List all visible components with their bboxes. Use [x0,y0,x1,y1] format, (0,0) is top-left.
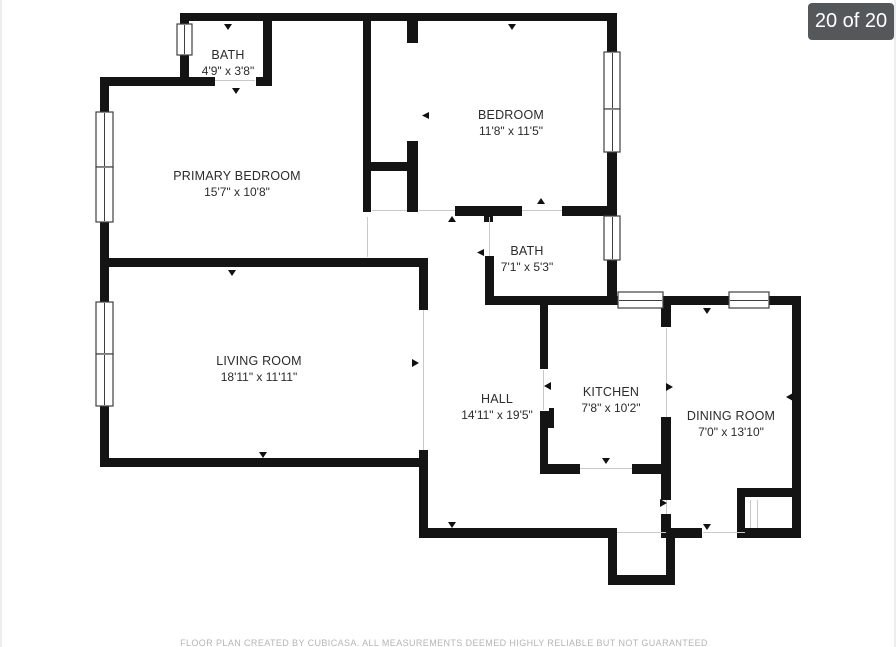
door-leaf [484,215,493,222]
marker-arrow [508,24,516,30]
wall-segment [263,13,272,86]
wall-segment [661,417,671,500]
room-label-bath-upper: BATH 4'9" x 3'8" [202,47,254,79]
floorplan-drawing [0,0,896,647]
room-dims: 15'7" x 10'8" [173,184,301,200]
threshold-line [580,468,632,469]
marker-arrow [448,216,456,222]
marker-arrow [224,24,232,30]
closet-door-line [757,500,758,528]
wall-segment [419,450,428,538]
wall-segment [608,538,617,578]
room-dims: 4'9" x 3'8" [202,63,254,79]
room-name: DINING ROOM [687,408,775,424]
floorplan-image[interactable]: BATH 4'9" x 3'8" PRIMARY BEDROOM 15'7" x… [0,0,896,647]
room-name: BEDROOM [478,107,544,123]
marker-arrow [703,524,711,530]
marker-arrow [537,198,545,204]
wall-segment [419,258,428,310]
walls [100,13,801,585]
room-label-bedroom: BEDROOM 11'8" x 11'5" [478,107,544,139]
marker-arrow [786,393,793,401]
opening-line [372,210,407,211]
wall-segment [180,13,616,21]
room-name: PRIMARY BEDROOM [173,168,301,184]
room-dims: 14'11" x 19'5" [461,407,533,423]
door-direction-markers [224,24,793,530]
threshold-line [522,210,562,211]
room-label-kitchen: KITCHEN 7'8" x 10'2" [581,384,640,416]
room-label-living-room: LIVING ROOM 18'11" x 11'11" [216,353,302,385]
marker-arrow [412,359,419,367]
opening-line [703,532,745,533]
room-name: KITCHEN [581,384,640,400]
wall-segment [419,528,617,538]
room-name: BATH [501,243,553,259]
marker-arrow [448,522,456,528]
wall-segment [745,528,800,538]
room-dims: 7'0" x 13'10" [687,424,775,440]
wall-segment [792,296,801,538]
room-name: BATH [202,47,254,63]
marker-arrow [703,308,711,314]
opening-line [666,328,667,417]
window-glass-line [104,355,105,405]
window-glass-line [104,168,105,221]
window-glass-line [612,217,613,259]
wall-segment [100,258,428,267]
marker-arrow [422,112,429,119]
opening-line [423,310,424,450]
photo-pager-badge: 20 of 20 [808,3,894,40]
marker-arrow [666,383,673,391]
room-dims: 7'8" x 10'2" [581,400,640,416]
opening-line [367,217,368,257]
room-dims: 18'11" x 11'11" [216,369,302,385]
room-label-dining-room: DINING ROOM 7'0" x 13'10" [687,408,775,440]
wall-segment [407,13,418,43]
window-glass-line [612,110,613,151]
marker-arrow [232,88,240,94]
room-dims: 7'1" x 5'3" [501,259,553,275]
marker-arrow [477,249,484,256]
wall-segment [737,497,745,538]
opening-line [489,217,490,256]
room-label-bath-middle: BATH 7'1" x 5'3" [501,243,553,275]
threshold-line [215,80,255,81]
threshold-line [543,370,544,410]
marker-arrow [228,270,236,276]
marker-arrow [259,452,267,458]
window-glass-line [184,25,185,54]
opening-line [419,210,455,211]
wall-segment [363,13,371,212]
room-dims: 11'8" x 11'5" [478,123,544,139]
marker-arrow [660,499,667,507]
room-label-hall: HALL 14'11" x 19'5" [461,391,533,423]
window-glass-line [104,303,105,353]
window-glass-line [730,300,768,301]
floorplan-disclaimer: FLOOR PLAN CREATED BY CUBICASA. ALL MEAS… [180,637,708,647]
wall-segment [100,458,427,467]
opening-line [617,532,666,533]
room-label-primary-bedroom: PRIMARY BEDROOM 15'7" x 10'8" [173,168,301,200]
wall-segment [407,141,418,212]
wall-segment [608,575,675,585]
closet-door-line [750,500,751,528]
room-name: LIVING ROOM [216,353,302,369]
threshold-line [666,500,667,514]
wall-segment [666,528,702,538]
wall-segment [666,538,675,578]
door-openings [215,76,667,514]
window-glass-line [104,113,105,166]
wall-segment [737,488,800,497]
window-glass-line [612,53,613,108]
room-name: HALL [461,391,533,407]
window-glass-line [619,300,662,301]
